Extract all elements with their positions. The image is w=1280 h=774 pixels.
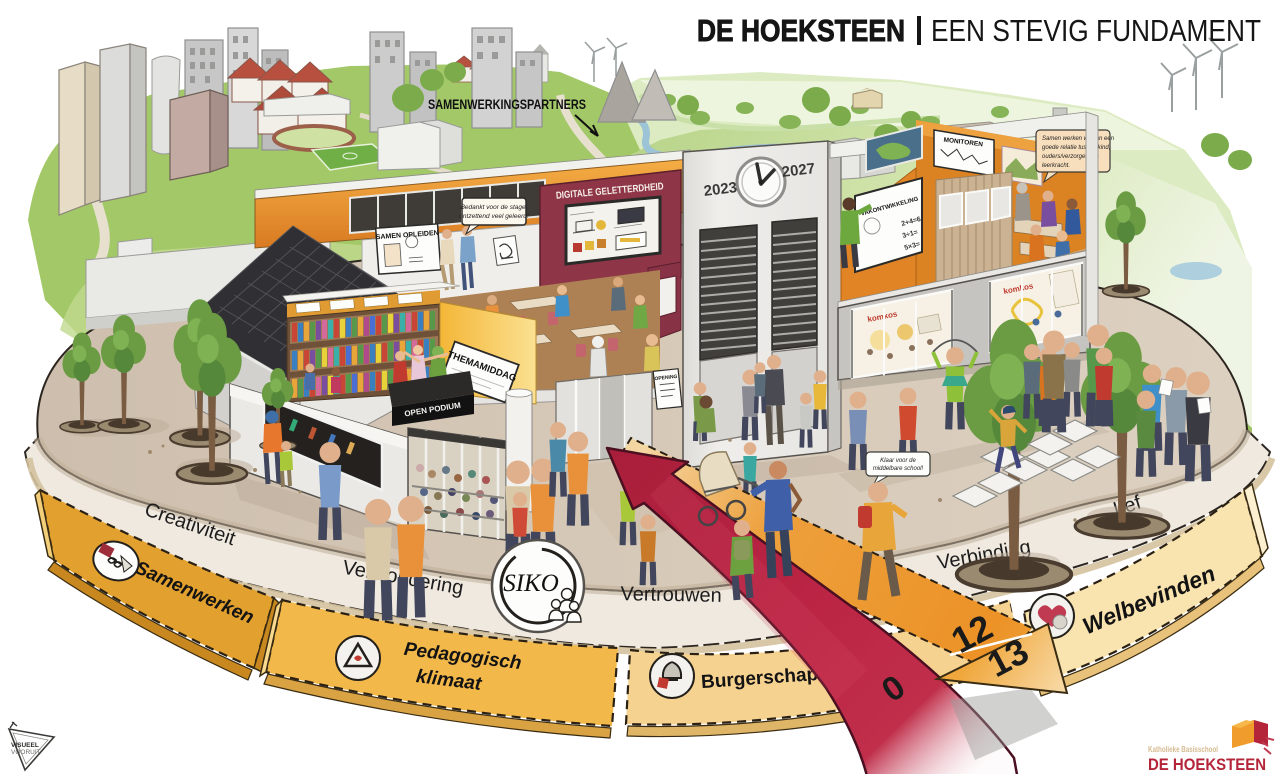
svg-text:Vertrouwen: Vertrouwen xyxy=(620,583,722,607)
svg-text:DE HOEKSTEEN: DE HOEKSTEEN xyxy=(697,13,905,48)
svg-text:leerkracht.: leerkracht. xyxy=(1042,163,1070,169)
svg-text:SAMENWERKINGSPARTNERS: SAMENWERKINGSPARTNERS xyxy=(428,97,586,112)
svg-text:DE HOEKSTEEN: DE HOEKSTEEN xyxy=(1148,755,1266,774)
svg-text:Samen werken wij aan een: Samen werken wij aan een xyxy=(1042,136,1115,142)
svg-text:middelbare school!: middelbare school! xyxy=(873,466,924,472)
svg-text:Klaar voor de: Klaar voor de xyxy=(880,458,916,464)
svg-text:SIKO: SIKO xyxy=(503,570,559,597)
svg-text:Bedankt voor de stage,: Bedankt voor de stage, xyxy=(461,204,528,211)
svg-text:Katholieke Basisschool: Katholieke Basisschool xyxy=(1148,745,1218,754)
svg-text:ontzettend veel geleerd!: ontzettend veel geleerd! xyxy=(459,213,529,220)
svg-text:VOORUIT: VOORUIT xyxy=(11,749,41,756)
svg-text:EEN STEVIG FUNDAMENT: EEN STEVIG FUNDAMENT xyxy=(931,13,1261,48)
svg-text:goede relatie tussen kind,: goede relatie tussen kind, xyxy=(1042,145,1110,151)
svg-text:VISUEEL: VISUEEL xyxy=(11,742,39,749)
